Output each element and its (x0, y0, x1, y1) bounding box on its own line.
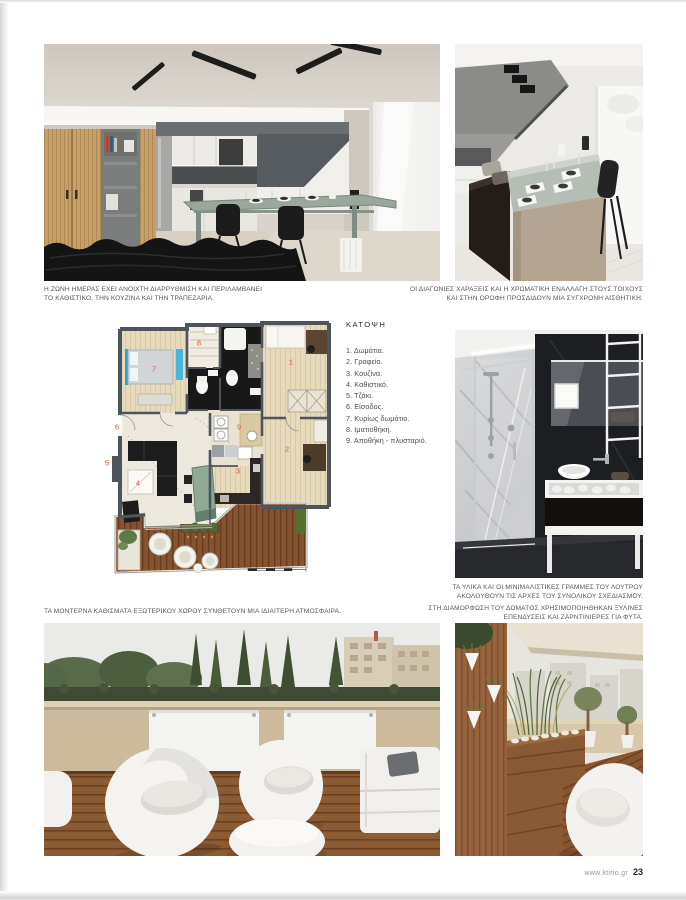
kitchen-back-wall (156, 136, 257, 231)
floorplan-title: ΚΑΤΟΨΗ (346, 320, 386, 329)
caption-terrace-line1: ΤΑ ΜΟΝΤΕΡΝΑ ΚΑΘΙΣΜΑΤΑ ΕΞΩΤΕΡΙΚΟΥ ΧΩΡΟΥ Σ… (44, 607, 341, 616)
caption-dining-line2: ΚΑΙ ΣΤΗΝ ΟΡΟΦΗ ΠΡΟΣΔΙΔΟΥΝ ΜΙΑ ΣΥΓΧΡΟΝΗ Α… (410, 294, 643, 303)
photo-balcony-garden-art (455, 623, 643, 856)
caption-bathroom-line1: ΤΑ ΥΛΙΚΑ ΚΑΙ ΟΙ ΜΙΝΙΜΑΛΙΣΤΙΚΕΣ ΓΡΑΜΜΕΣ Τ… (452, 583, 643, 592)
caption-bathroom-line2: ΑΚΟΛΟΥΘΟΥΝ ΤΙΣ ΑΡΧΕΣ ΤΟΥ ΣΥΝΟΛΙΚΟΥ ΣΧΕΔΙ… (452, 592, 643, 601)
legend-item-4: 4. Καθιστικό. (346, 379, 427, 390)
caption-roof-room: ΣΤΗ ΔΙΑΜΟΡΦΩΣΗ ΤΟΥ ΔΩΜΑΤΟΣ ΧΡΗΣΙΜΟΠΟΙΗΘΗ… (428, 604, 643, 622)
legend-item-5: 5. Τζάκι. (346, 390, 427, 401)
photo-dining-detail-art (455, 44, 643, 281)
page-edge-shadow-bottom (0, 891, 686, 900)
plan-number-2: 2 (285, 445, 289, 454)
photo-living-kitchen-art (44, 44, 440, 281)
caption-terrace: ΤΑ ΜΟΝΤΕΡΝΑ ΚΑΘΙΣΜΑΤΑ ΕΞΩΤΕΡΙΚΟΥ ΧΩΡΟΥ Σ… (44, 607, 341, 616)
page-edge-shadow-top (0, 0, 686, 3)
caption-dining-line1: ΟΙ ΔΙΑΓΩΝΙΕΣ ΧΑΡΑΞΕΙΣ ΚΑΙ Η ΧΡΩΜΑΤΙΚΗ ΕΝ… (410, 285, 643, 294)
photo-bathroom (455, 330, 643, 578)
plan-number-5: 5 (105, 459, 109, 468)
plan-number-7: 7 (152, 365, 156, 374)
page-edge-shadow-left (0, 0, 9, 900)
caption-dining: ΟΙ ΔΙΑΓΩΝΙΕΣ ΧΑΡΑΞΕΙΣ ΚΑΙ Η ΧΡΩΜΑΤΙΚΗ ΕΝ… (410, 285, 643, 303)
plan-number-9: 9 (237, 423, 241, 432)
plan-number-8: 8 (197, 339, 201, 348)
legend-item-3: 3. Κουζίνα. (346, 368, 427, 379)
floorplan-drawing: 123456789 (100, 318, 340, 576)
footer-site-url: www.ktirio.gr (584, 870, 628, 877)
plan-number-3: 3 (236, 467, 240, 476)
caption-roof-room-line2: ΕΠΕΝΔΥΣΕΙΣ ΚΑΙ ΖΑΡΝΤΙΝΙΕΡΕΣ ΓΙΑ ΦΥΤΑ. (428, 613, 643, 622)
legend-item-8: 8. Ιματιοθήκη. (346, 424, 427, 435)
photo-living-kitchen (44, 44, 440, 281)
photo-bathroom-art (455, 330, 643, 578)
legend-item-9: 9. Αποθήκη - πλυσταριό. (346, 435, 427, 446)
caption-living-line1: Η ΖΩΝΗ ΗΜΕΡΑΣ ΕΧΕΙ ΑΝΟΙΧΤΗ ΔΙΑΡΡΥΘΜΙΣΗ Κ… (44, 285, 262, 294)
floorplan-legend: 1. Δωμάτια.2. Γραφείο.3. Κουζίνα.4. Καθι… (346, 345, 427, 447)
caption-living-line2: ΤΟ ΚΑΘΙΣΤΙΚΟ, ΤΗΝ ΚΟΥΖΙΝΑ ΚΑΙ ΤΗΝ ΤΡΑΠΕΖ… (44, 294, 262, 303)
photo-balcony-garden (455, 623, 643, 856)
plan-number-1: 1 (289, 358, 293, 367)
photo-dining-detail (455, 44, 643, 281)
caption-living: Η ΖΩΝΗ ΗΜΕΡΑΣ ΕΧΕΙ ΑΝΟΙΧΤΗ ΔΙΑΡΡΥΘΜΙΣΗ Κ… (44, 285, 262, 303)
footer-page-number: 23 (633, 867, 643, 877)
white-sofa (360, 747, 440, 833)
wood-wardrobe (44, 129, 156, 259)
magazine-page: Η ΖΩΝΗ ΗΜΕΡΑΣ ΕΧΕΙ ΑΝΟΙΧΤΗ ΔΙΑΡΡΥΘΜΙΣΗ Κ… (0, 0, 686, 900)
plan-number-6: 6 (115, 423, 119, 432)
photo-roof-terrace (44, 623, 440, 856)
page-footer: www.ktirio.gr23 (584, 862, 643, 880)
legend-item-7: 7. Κυρίως δωμάτιο. (346, 413, 427, 424)
legend-item-6: 6. Είσοδος. (346, 401, 427, 412)
caption-roof-room-line1: ΣΤΗ ΔΙΑΜΟΡΦΩΣΗ ΤΟΥ ΔΩΜΑΤΟΣ ΧΡΗΣΙΜΟΠΟΙΗΘΗ… (428, 604, 643, 613)
floorplan-svg (100, 318, 340, 576)
legend-item-2: 2. Γραφείο. (346, 356, 427, 367)
plan-number-4: 4 (136, 479, 140, 488)
legend-item-1: 1. Δωμάτια. (346, 345, 427, 356)
caption-bathroom: ΤΑ ΥΛΙΚΑ ΚΑΙ ΟΙ ΜΙΝΙΜΑΛΙΣΤΙΚΕΣ ΓΡΑΜΜΕΣ Τ… (452, 583, 643, 601)
photo-roof-terrace-art (44, 623, 440, 856)
